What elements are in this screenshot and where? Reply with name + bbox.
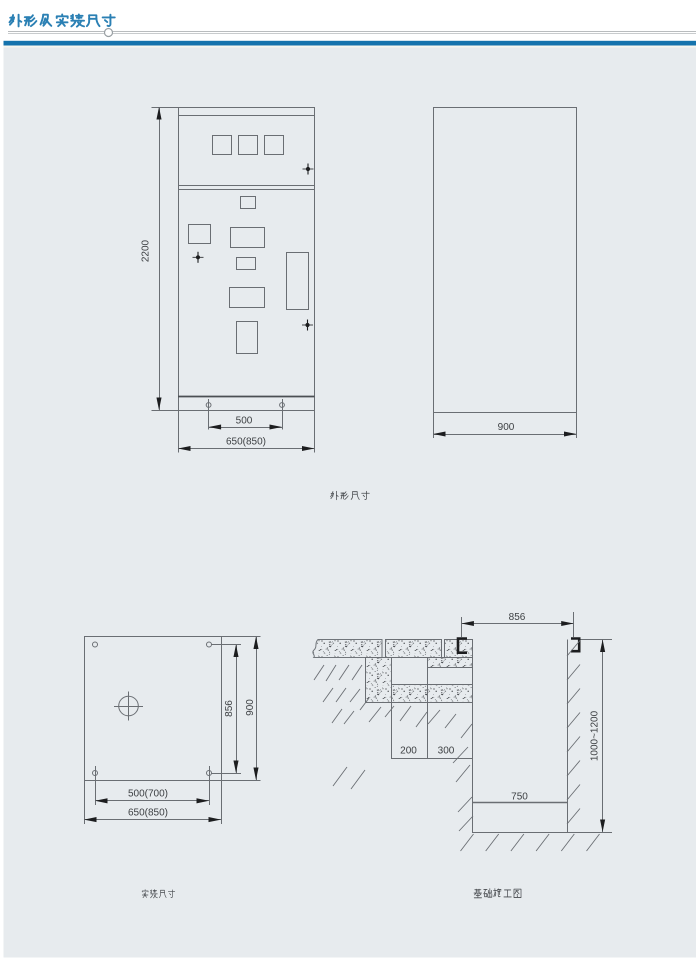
svg-text:750: 750	[511, 792, 528, 803]
svg-text:650(850): 650(850)	[226, 437, 266, 448]
svg-text:300: 300	[438, 746, 455, 757]
svg-text:650(850): 650(850)	[128, 808, 168, 819]
svg-text:856: 856	[509, 612, 526, 623]
svg-text:900: 900	[498, 422, 515, 433]
svg-text:500: 500	[236, 416, 253, 427]
svg-text:900: 900	[245, 699, 256, 716]
svg-text:2200: 2200	[141, 239, 152, 262]
svg-text:500(700): 500(700)	[128, 789, 168, 800]
svg-text:200: 200	[400, 746, 417, 757]
svg-text:856: 856	[224, 700, 235, 717]
svg-text:1000~1200: 1000~1200	[590, 710, 601, 761]
